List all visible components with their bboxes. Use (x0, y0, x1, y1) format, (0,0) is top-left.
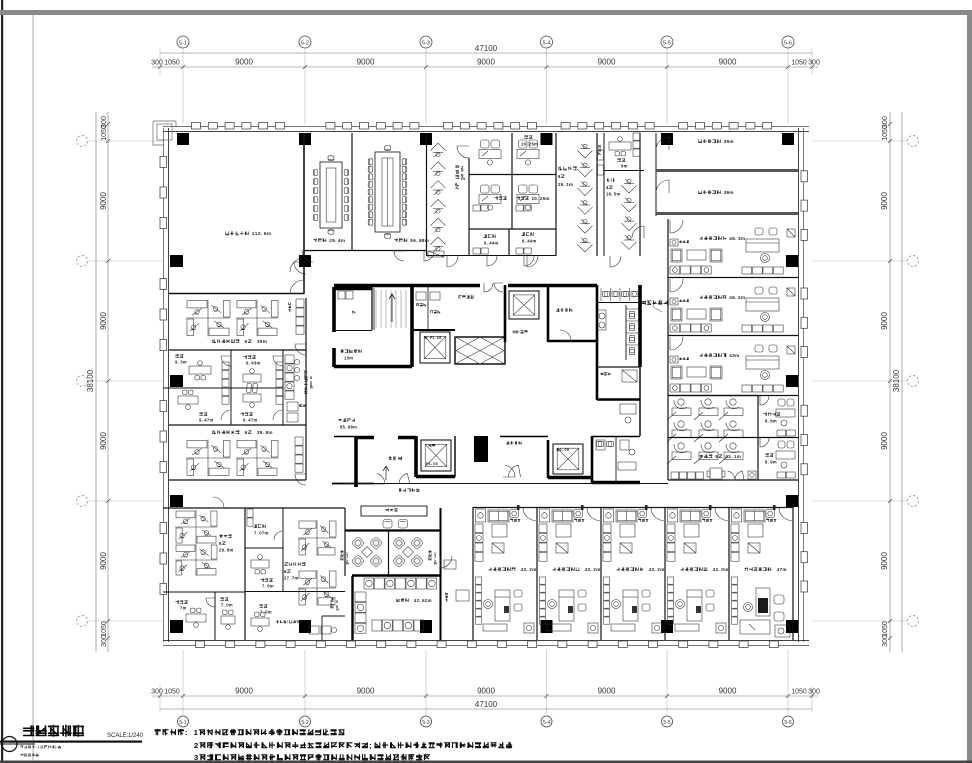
svg-text:9000: 9000 (598, 687, 616, 696)
svg-text:.: . (178, 360, 179, 365)
svg-text:5-4: 5-4 (543, 41, 551, 47)
svg-text:1050: 1050 (882, 621, 889, 637)
svg-text:m: m (741, 295, 745, 300)
svg-text:9000: 9000 (357, 58, 375, 67)
svg-text:5-3: 5-3 (422, 720, 429, 726)
svg-text:m: m (341, 238, 345, 243)
svg-text:9000: 9000 (719, 58, 737, 67)
svg-text:.: . (537, 196, 538, 201)
svg-text:m: m (729, 139, 733, 144)
svg-text:5-5: 5-5 (663, 41, 671, 47)
svg-text:.: . (335, 238, 336, 243)
svg-text:.: . (564, 182, 565, 187)
svg-text:9000: 9000 (598, 58, 616, 67)
svg-text:47100: 47100 (475, 44, 498, 53)
svg-text:;: ; (369, 741, 372, 750)
svg-text:m: m (295, 576, 299, 581)
svg-text:m: m (268, 430, 272, 435)
svg-text:5-6: 5-6 (784, 720, 791, 726)
svg-text:.: . (289, 576, 290, 581)
svg-text:.: . (590, 567, 591, 572)
svg-text:.: . (224, 548, 225, 553)
svg-text:m: m (617, 192, 621, 197)
svg-text:1050: 1050 (101, 125, 108, 141)
svg-text:m: m (229, 603, 233, 608)
svg-text:m: m (210, 418, 214, 423)
svg-text:m: m (428, 598, 432, 603)
svg-text:m: m (495, 241, 499, 246)
svg-text:SCALE:: SCALE: (107, 733, 129, 739)
svg-text:m: m (533, 239, 537, 244)
svg-text:.: . (416, 238, 417, 243)
svg-text:9000: 9000 (99, 312, 108, 330)
svg-text:300: 300 (808, 689, 820, 696)
svg-text:.: . (257, 531, 258, 536)
svg-text:m: m (268, 610, 272, 615)
svg-text:9000: 9000 (99, 192, 108, 210)
svg-text:.: . (263, 430, 264, 435)
svg-text:300: 300 (151, 689, 163, 696)
svg-text:m: m (735, 353, 739, 358)
svg-text:5-2: 5-2 (301, 41, 309, 47)
svg-text:m: m (265, 531, 269, 536)
svg-text:1050: 1050 (882, 125, 889, 141)
svg-text:300: 300 (882, 635, 889, 647)
svg-text:m: m (724, 567, 728, 572)
svg-text:.: . (487, 241, 488, 246)
svg-text:47100: 47100 (475, 700, 498, 709)
svg-text:.: . (654, 567, 655, 572)
svg-text:300: 300 (808, 60, 820, 67)
svg-text:m: m (545, 196, 549, 201)
svg-text:.: . (731, 454, 732, 459)
svg-text:5-2: 5-2 (301, 720, 308, 726)
svg-text:.: . (202, 418, 203, 423)
svg-text:9000: 9000 (880, 312, 889, 330)
svg-text:3: 3 (194, 753, 198, 762)
svg-text:1050: 1050 (101, 621, 108, 637)
svg-text:m: m (773, 460, 777, 465)
svg-text:5-6: 5-6 (784, 41, 792, 47)
svg-text:9000: 9000 (99, 552, 108, 570)
svg-text:m: m (254, 418, 258, 423)
svg-text:1050: 1050 (791, 689, 807, 696)
svg-text:m: m (263, 339, 267, 344)
svg-text:.: . (768, 419, 769, 424)
svg-text:.: . (718, 567, 719, 572)
svg-text:.: . (735, 236, 736, 241)
svg-text:m: m (737, 454, 741, 459)
svg-text:300: 300 (101, 635, 108, 647)
svg-text:300: 300 (151, 60, 163, 67)
svg-text:1/240: 1/240 (128, 733, 144, 739)
svg-text:9000: 9000 (235, 687, 253, 696)
svg-text:m: m (596, 567, 600, 572)
svg-text:.: . (419, 598, 420, 603)
svg-text:5-3: 5-3 (422, 41, 430, 47)
svg-text:.: . (525, 239, 526, 244)
svg-text:m: m (741, 236, 745, 241)
svg-text:.: . (526, 567, 527, 572)
svg-text:m: m (461, 176, 465, 181)
svg-text:9000: 9000 (880, 432, 889, 450)
svg-text:m: m (624, 164, 628, 169)
svg-text:9000: 9000 (880, 552, 889, 570)
svg-text:m: m (183, 606, 187, 611)
svg-text:6: 6 (245, 339, 248, 344)
svg-text:1050: 1050 (164, 60, 180, 67)
svg-text:.: . (246, 418, 247, 423)
svg-text:9000: 9000 (477, 58, 495, 67)
svg-text:9000: 9000 (357, 687, 375, 696)
svg-text:.: . (345, 425, 346, 430)
svg-text:m: m (425, 238, 429, 243)
svg-text:.: . (249, 361, 250, 366)
svg-text:9000: 9000 (719, 687, 737, 696)
svg-text:5: 5 (436, 462, 438, 466)
svg-text:38100: 38100 (86, 369, 95, 392)
svg-text:m: m (729, 190, 733, 195)
svg-text:m: m (183, 360, 187, 365)
svg-text:9000: 9000 (235, 58, 253, 67)
svg-text:5: 5 (567, 448, 569, 452)
svg-text:.: . (224, 603, 225, 608)
svg-text:m: m (257, 361, 261, 366)
svg-text:9000: 9000 (880, 192, 889, 210)
svg-text:/: / (287, 620, 288, 624)
svg-text:5-1: 5-1 (179, 41, 187, 47)
svg-text:8: 8 (439, 336, 441, 340)
svg-text:m: m (532, 567, 536, 572)
svg-text:.: . (611, 192, 612, 197)
svg-text:m: m (267, 232, 271, 237)
svg-text:5-4: 5-4 (543, 720, 550, 726)
svg-text:.: . (768, 460, 769, 465)
svg-text:m: m (353, 425, 357, 430)
svg-text:9000: 9000 (477, 687, 495, 696)
svg-text:m: m (773, 419, 777, 424)
svg-text:m: m (782, 567, 786, 572)
svg-text:.: . (265, 584, 266, 589)
svg-text:m: m (569, 182, 573, 187)
svg-text:5-5: 5-5 (663, 720, 670, 726)
svg-text:.: . (735, 295, 736, 300)
svg-text::: : (185, 728, 188, 737)
svg-text:5-1: 5-1 (179, 720, 186, 726)
svg-text:m: m (230, 548, 234, 553)
svg-text:38100: 38100 (892, 369, 901, 392)
svg-text:2: 2 (194, 741, 198, 750)
svg-text:m: m (349, 356, 353, 361)
svg-text:9000: 9000 (99, 432, 108, 450)
svg-text:6: 6 (245, 430, 248, 435)
svg-text::: : (35, 745, 36, 749)
svg-text:m: m (270, 584, 274, 589)
svg-text:m: m (660, 567, 664, 572)
svg-text:1050: 1050 (164, 689, 180, 696)
svg-text:1: 1 (194, 728, 199, 737)
svg-text:1050: 1050 (791, 60, 807, 67)
